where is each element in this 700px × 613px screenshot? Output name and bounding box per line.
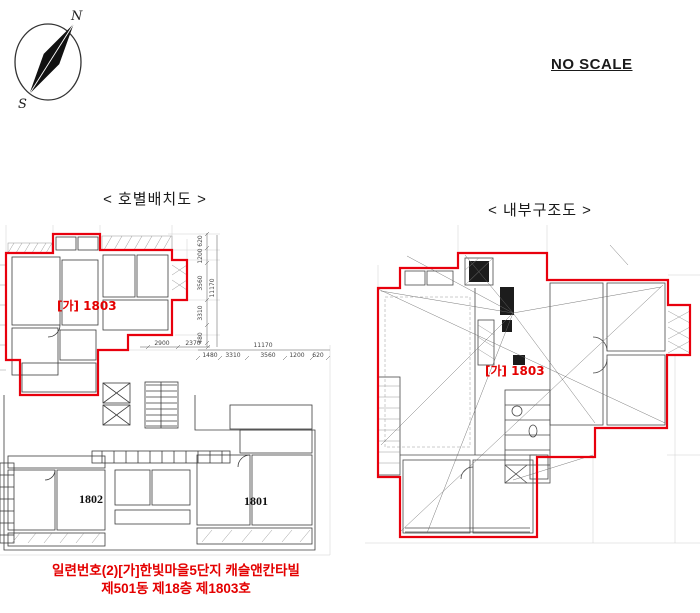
svg-text:620: 620: [197, 235, 204, 247]
left-plan-unit-1803-label: [가] 1803: [57, 298, 117, 313]
unit-1801-label: 1801: [244, 494, 268, 508]
document-page: N S NO SCALE < 호별배치도 > < 내부구조도 >: [0, 0, 700, 613]
svg-text:1200: 1200: [289, 352, 304, 359]
left-plan-title: < 호별배치도 >: [55, 188, 255, 209]
building-walls: [378, 258, 665, 533]
compass-needle-split: [30, 25, 73, 93]
svg-text:11170: 11170: [209, 278, 216, 297]
dark-fixtures: [469, 261, 525, 365]
caption-line1: 일련번호(2)[가]한빛마을5단지 캐슬앤칸타빌: [8, 562, 344, 580]
svg-text:3560: 3560: [197, 275, 204, 290]
svg-text:3310: 3310: [225, 352, 240, 359]
svg-text:2370: 2370: [185, 340, 200, 347]
right-plan-unit-1803-label: [가] 1803: [485, 363, 545, 378]
caption-line2: 제501동 제18층 제1803호: [8, 580, 344, 598]
grid-lines: [365, 225, 700, 543]
svg-text:11170: 11170: [253, 342, 272, 349]
elevator-stair-core: [92, 382, 230, 463]
svg-text:2900: 2900: [154, 340, 169, 347]
svg-text:3560: 3560: [260, 352, 275, 359]
unit-1803-red-outline: [6, 234, 187, 395]
dimension-labels: 620 1200 3560 3310 480 11170 2900 2370 1…: [154, 235, 324, 359]
svg-text:3310: 3310: [197, 305, 204, 320]
svg-text:1200: 1200: [197, 248, 204, 263]
compass-rose-icon: N S: [5, 3, 95, 118]
compass-north-label: N: [70, 9, 83, 24]
right-plan-title: < 내부구조도 >: [440, 199, 640, 220]
leader-lines: [378, 245, 665, 533]
no-scale-note: NO SCALE: [551, 56, 633, 73]
svg-text:620: 620: [312, 352, 324, 359]
unit-layout-plan: 620 1200 3560 3310 480 11170 2900 2370 1…: [0, 225, 340, 560]
unit-1802-label: 1802: [79, 492, 103, 506]
compass-south-label: S: [18, 97, 27, 112]
caption: 일련번호(2)[가]한빛마을5단지 캐슬앤칸타빌 제501동 제18층 제180…: [8, 562, 344, 598]
internal-structure-plan: [가] 1803: [365, 225, 700, 545]
unit-1803-structure-red-outline: [378, 253, 690, 537]
grid-lines: [0, 225, 330, 555]
svg-text:1480: 1480: [202, 352, 217, 359]
detail-hatch: [378, 258, 690, 463]
